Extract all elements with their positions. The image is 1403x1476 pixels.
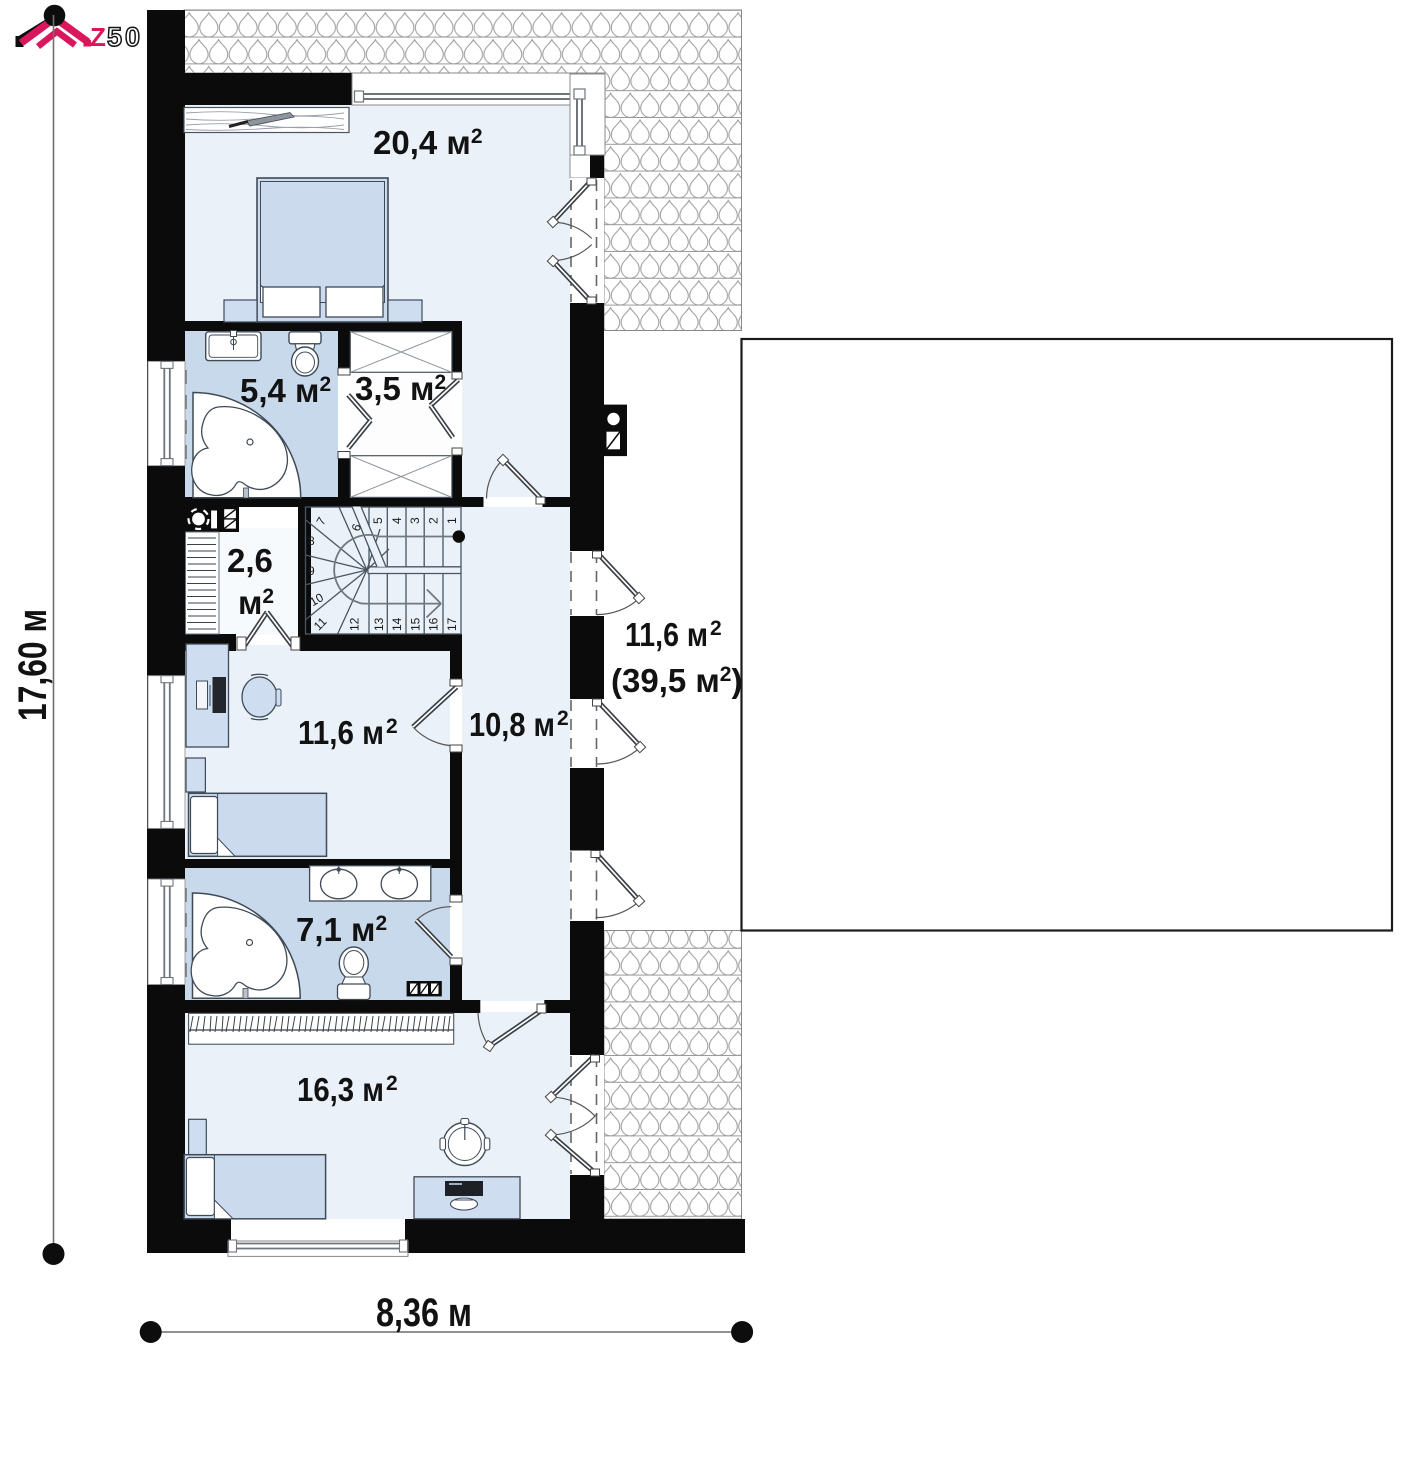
- svg-text:10,8 м: 10,8 м: [469, 706, 555, 743]
- svg-text:2: 2: [427, 517, 441, 524]
- svg-text:4: 4: [390, 517, 404, 524]
- svg-text:7,1 м2: 7,1 м2: [296, 911, 387, 948]
- svg-text:16,3 м: 16,3 м: [297, 1071, 384, 1108]
- svg-text:17,60 м: 17,60 м: [11, 609, 55, 721]
- svg-text:5,4 м2: 5,4 м2: [240, 372, 331, 409]
- svg-text:17: 17: [445, 617, 459, 631]
- svg-text:15: 15: [409, 617, 423, 631]
- svg-text:2: 2: [557, 707, 569, 730]
- svg-text:13: 13: [372, 617, 386, 631]
- svg-text:2,6: 2,6: [227, 542, 273, 579]
- svg-text:2: 2: [710, 617, 722, 640]
- svg-text:8: 8: [308, 534, 315, 548]
- svg-text:3,5 м2: 3,5 м2: [355, 370, 446, 407]
- svg-text:11,6 м: 11,6 м: [625, 616, 708, 653]
- svg-text:5: 5: [371, 517, 385, 524]
- svg-text:9: 9: [308, 564, 315, 578]
- svg-text:Z: Z: [90, 22, 106, 52]
- svg-text:14: 14: [390, 617, 404, 631]
- svg-text:50: 50: [107, 22, 143, 52]
- svg-text:2: 2: [386, 715, 398, 738]
- svg-text:8,36 м: 8,36 м: [376, 1291, 472, 1335]
- svg-text:3: 3: [408, 517, 422, 524]
- svg-text:1: 1: [445, 517, 459, 524]
- svg-text:2: 2: [386, 1072, 398, 1095]
- svg-text:11,6 м: 11,6 м: [298, 714, 384, 751]
- svg-text:20,4 м2: 20,4 м2: [373, 124, 483, 161]
- svg-text:12: 12: [348, 617, 362, 631]
- svg-text:16: 16: [427, 617, 441, 631]
